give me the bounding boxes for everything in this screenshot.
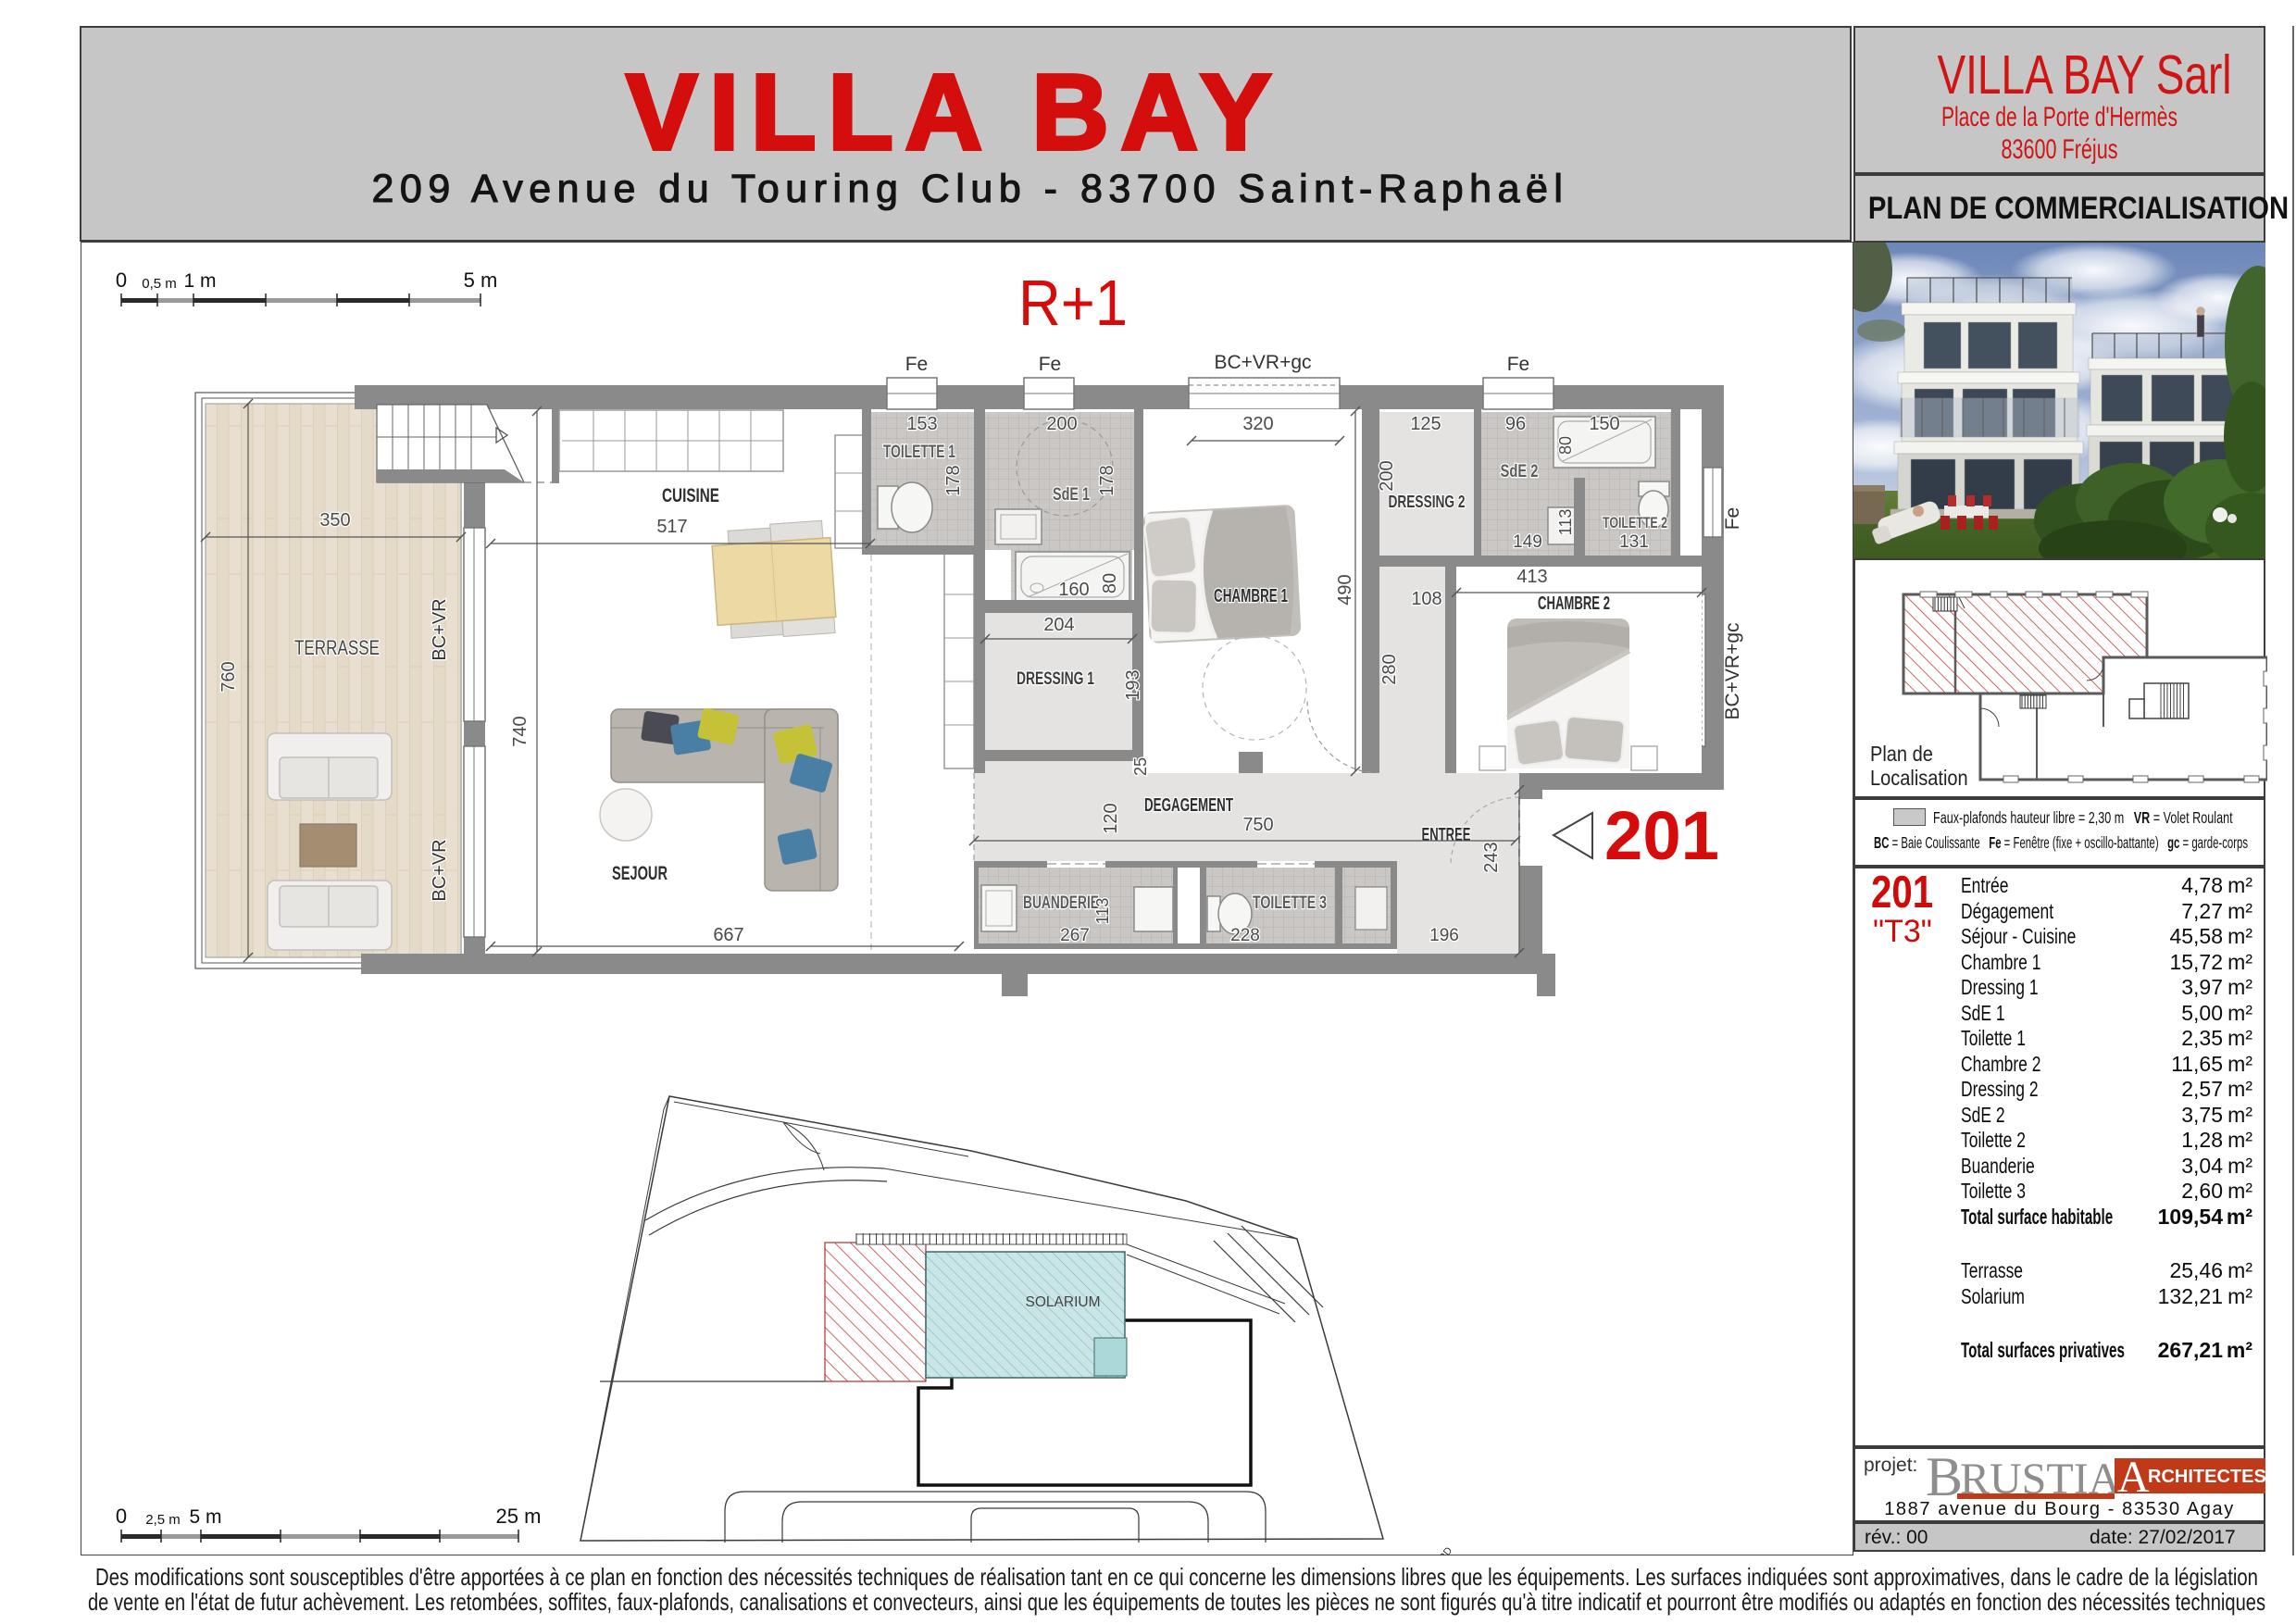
svg-text:113: 113 [1093, 898, 1112, 925]
svg-text:760: 760 [218, 661, 239, 692]
svg-text:TOILETTE 1: TOILETTE 1 [883, 443, 955, 462]
svg-text:CHAMBRE 1: CHAMBRE 1 [1214, 586, 1288, 606]
svg-text:BUANDERIE: BUANDERIE [1023, 893, 1099, 913]
svg-text:25 m: 25 m [496, 1505, 542, 1528]
svg-text:201: 201 [1604, 797, 1719, 874]
svg-text:BC+VR: BC+VR [430, 839, 450, 901]
svg-text:CUISINE: CUISINE [662, 485, 719, 506]
svg-text:178: 178 [1097, 465, 1117, 495]
svg-text:1 m: 1 m [183, 270, 216, 292]
svg-text:5 m: 5 m [189, 1506, 221, 1528]
svg-text:740: 740 [510, 716, 530, 746]
svg-text:Fe: Fe [1507, 354, 1530, 375]
svg-text:160: 160 [1058, 580, 1089, 600]
svg-text:SEJOUR: SEJOUR [612, 863, 668, 884]
svg-text:125: 125 [1410, 414, 1441, 434]
svg-text:96: 96 [1505, 414, 1526, 434]
svg-text:80: 80 [1100, 573, 1120, 593]
svg-text:5 m: 5 m [464, 269, 498, 292]
svg-text:SdE 2: SdE 2 [1501, 462, 1539, 481]
svg-text:350: 350 [319, 510, 350, 531]
svg-text:DRESSING 1: DRESSING 1 [1017, 669, 1094, 689]
svg-text:204: 204 [1043, 615, 1074, 635]
svg-text:490: 490 [1335, 574, 1355, 605]
svg-text:150: 150 [1589, 414, 1619, 434]
svg-text:193: 193 [1123, 669, 1143, 700]
svg-text:DEGAGEMENT: DEGAGEMENT [1144, 795, 1233, 816]
svg-text:SdE 1: SdE 1 [1053, 485, 1090, 505]
svg-text:267: 267 [1060, 926, 1090, 945]
svg-text:2,5 m: 2,5 m [145, 1512, 181, 1528]
svg-text:320: 320 [1242, 414, 1273, 434]
svg-text:113: 113 [1556, 509, 1575, 536]
svg-text:413: 413 [1516, 567, 1547, 587]
svg-text:R+1: R+1 [1018, 267, 1128, 339]
svg-text:BC+VR+gc: BC+VR+gc [1722, 622, 1743, 719]
svg-text:149: 149 [1513, 532, 1542, 552]
svg-text:BC+VR: BC+VR [430, 598, 450, 660]
svg-text:200: 200 [1377, 460, 1397, 491]
svg-text:ENTREE: ENTREE [1422, 825, 1471, 845]
svg-text:TOILETTE 2: TOILETTE 2 [1603, 514, 1667, 531]
svg-text:228: 228 [1230, 926, 1260, 945]
svg-text:Fe: Fe [1722, 507, 1743, 531]
svg-text:SOLARIUM: SOLARIUM [1026, 1294, 1101, 1310]
svg-text:750: 750 [1242, 815, 1273, 835]
svg-text:TERRASSE: TERRASSE [294, 636, 380, 659]
svg-text:NORD: NORD [1428, 1545, 1454, 1555]
svg-text:0: 0 [116, 1505, 127, 1528]
svg-text:131: 131 [1619, 532, 1649, 552]
svg-text:0,5 m: 0,5 m [142, 276, 177, 292]
svg-text:0: 0 [116, 269, 127, 292]
svg-text:243: 243 [1481, 842, 1502, 872]
svg-text:TOILETTE 3: TOILETTE 3 [1253, 893, 1327, 913]
svg-text:517: 517 [656, 517, 687, 537]
svg-text:120: 120 [1101, 803, 1121, 833]
svg-text:CHAMBRE 2: CHAMBRE 2 [1538, 593, 1610, 614]
svg-text:DRESSING 2: DRESSING 2 [1389, 493, 1466, 511]
svg-text:108: 108 [1411, 589, 1441, 609]
svg-text:280: 280 [1379, 654, 1400, 684]
svg-text:153: 153 [906, 414, 937, 434]
svg-text:Fe: Fe [905, 354, 929, 375]
svg-text:80: 80 [1556, 436, 1575, 455]
svg-text:Fe: Fe [1039, 354, 1062, 375]
svg-text:178: 178 [943, 465, 964, 495]
svg-text:196: 196 [1429, 926, 1459, 945]
svg-text:667: 667 [713, 925, 743, 945]
svg-text:200: 200 [1046, 414, 1077, 434]
svg-text:BC+VR+gc: BC+VR+gc [1214, 352, 1311, 373]
svg-text:25: 25 [1131, 757, 1150, 776]
